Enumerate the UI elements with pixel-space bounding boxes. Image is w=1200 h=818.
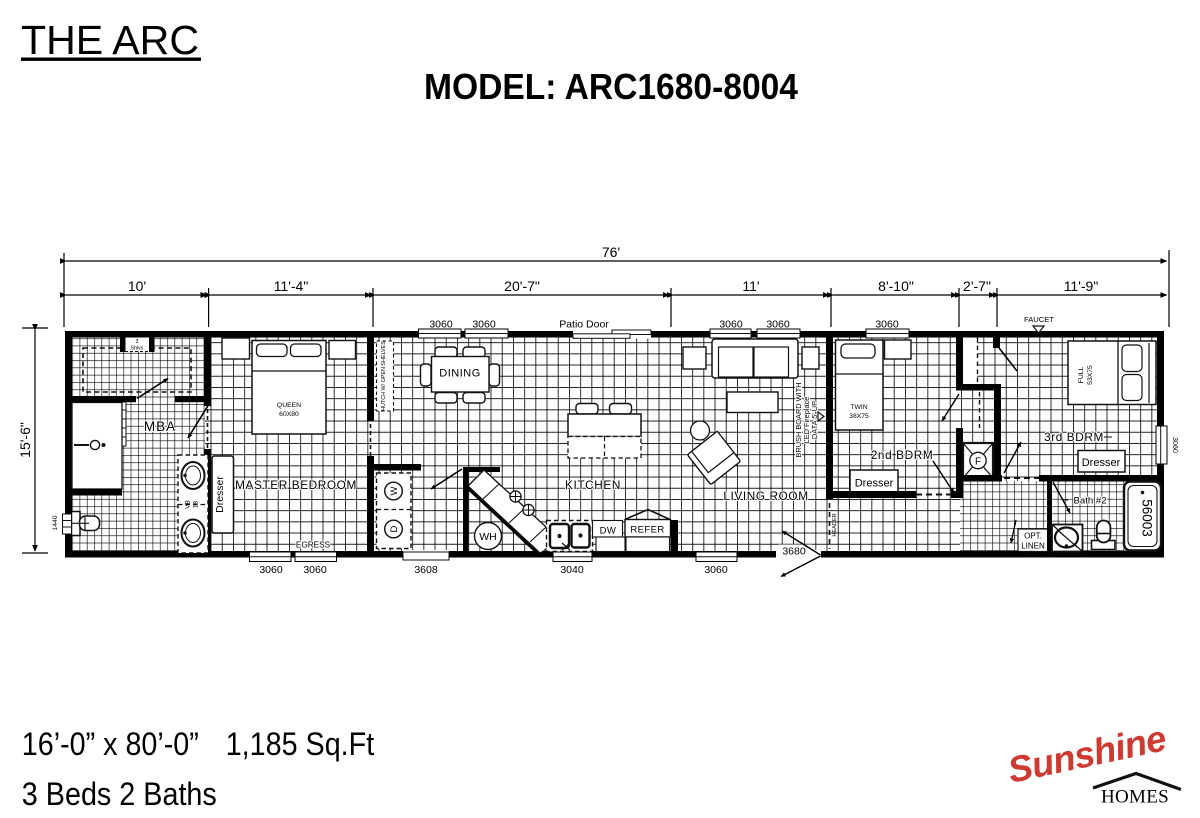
- svg-text:Sunshine: Sunshine: [1004, 717, 1169, 790]
- svg-text:56003: 56003: [1140, 499, 1155, 537]
- svg-text:MODEL: ARC1680-8004: MODEL: ARC1680-8004: [424, 66, 798, 107]
- svg-text:3060: 3060: [766, 319, 790, 331]
- svg-text:OPT.: OPT.: [1024, 532, 1042, 541]
- svg-text:DINING: DINING: [439, 368, 481, 380]
- svg-text:3060: 3060: [303, 564, 327, 576]
- svg-text:THE ARC: THE ARC: [21, 17, 199, 63]
- svg-text:11'-4": 11'-4": [274, 278, 309, 294]
- svg-text:MBA: MBA: [144, 419, 176, 434]
- svg-text:QUEEN: QUEEN: [277, 402, 301, 409]
- svg-text:3060: 3060: [259, 564, 283, 576]
- svg-text:18: 18: [193, 501, 200, 509]
- svg-text:Bath #2: Bath #2: [1073, 496, 1106, 507]
- svg-text:76': 76': [602, 244, 620, 260]
- svg-text:3 Beds 2 Baths: 3 Beds 2 Baths: [22, 776, 217, 812]
- svg-text:LIVING ROOM: LIVING ROOM: [723, 489, 808, 503]
- svg-text:15'-6": 15'-6": [17, 422, 33, 458]
- svg-text:EGRESS: EGRESS: [296, 541, 331, 550]
- svg-text:FAUCET: FAUCET: [1024, 315, 1054, 324]
- svg-text:11': 11': [742, 278, 759, 294]
- svg-text:3rd BDRM: 3rd BDRM: [1044, 430, 1104, 444]
- svg-text:1,185 Sq.Ft: 1,185 Sq.Ft: [226, 726, 375, 762]
- svg-text:HUTCH W/ OPEN SHELVES: HUTCH W/ OPEN SHELVES: [381, 341, 387, 411]
- svg-text:2nd BDRM: 2nd BDRM: [871, 448, 934, 462]
- svg-text:HOMES: HOMES: [1101, 787, 1169, 808]
- svg-text:TWIN: TWIN: [850, 404, 867, 411]
- svg-text:3060: 3060: [429, 319, 453, 331]
- svg-text:2'-7": 2'-7": [963, 278, 991, 294]
- svg-text:LINEN: LINEN: [1021, 542, 1045, 551]
- svg-text:D: D: [389, 525, 400, 532]
- svg-text:FULL: FULL: [1078, 366, 1085, 383]
- svg-text:3040: 3040: [560, 564, 584, 576]
- svg-text:3060: 3060: [472, 319, 496, 331]
- svg-text:Patio Door: Patio Door: [559, 319, 609, 331]
- svg-text:3060: 3060: [1171, 437, 1180, 453]
- svg-text:3608: 3608: [414, 564, 438, 576]
- svg-text:8'-10": 8'-10": [878, 278, 914, 294]
- svg-text:Dresser: Dresser: [855, 478, 894, 490]
- svg-text:3680: 3680: [782, 546, 806, 558]
- svg-text:Dresser: Dresser: [1082, 457, 1121, 469]
- svg-text:DW: DW: [600, 526, 617, 537]
- svg-text:3: 3: [136, 339, 139, 345]
- svg-text:11'-9": 11'-9": [1064, 278, 1099, 294]
- svg-text:F: F: [975, 457, 981, 468]
- svg-text:Shlvs: Shlvs: [131, 346, 144, 352]
- svg-text:3060: 3060: [704, 564, 728, 576]
- svg-text:W: W: [389, 486, 400, 495]
- svg-text:Dresser: Dresser: [214, 476, 226, 513]
- svg-text:VB: VB: [185, 500, 192, 509]
- svg-text:3060: 3060: [875, 319, 899, 331]
- svg-text:20'-7": 20'-7": [504, 278, 540, 294]
- svg-text:3060: 3060: [719, 319, 743, 331]
- svg-text:KITCHEN: KITCHEN: [565, 478, 621, 492]
- svg-text:16’-0” x 80’-0”: 16’-0” x 80’-0”: [22, 726, 199, 762]
- svg-text:MASTER BEDROOM: MASTER BEDROOM: [235, 478, 357, 492]
- svg-text:WH: WH: [479, 531, 497, 543]
- svg-text:60X80: 60X80: [279, 411, 299, 418]
- svg-text:HEADER: HEADER: [832, 513, 838, 536]
- svg-text:38X75: 38X75: [849, 413, 869, 420]
- svg-text:10': 10': [128, 278, 146, 294]
- svg-text:REFER: REFER: [630, 525, 664, 536]
- svg-text:53X75: 53X75: [1087, 365, 1094, 385]
- svg-text:1440: 1440: [52, 515, 59, 530]
